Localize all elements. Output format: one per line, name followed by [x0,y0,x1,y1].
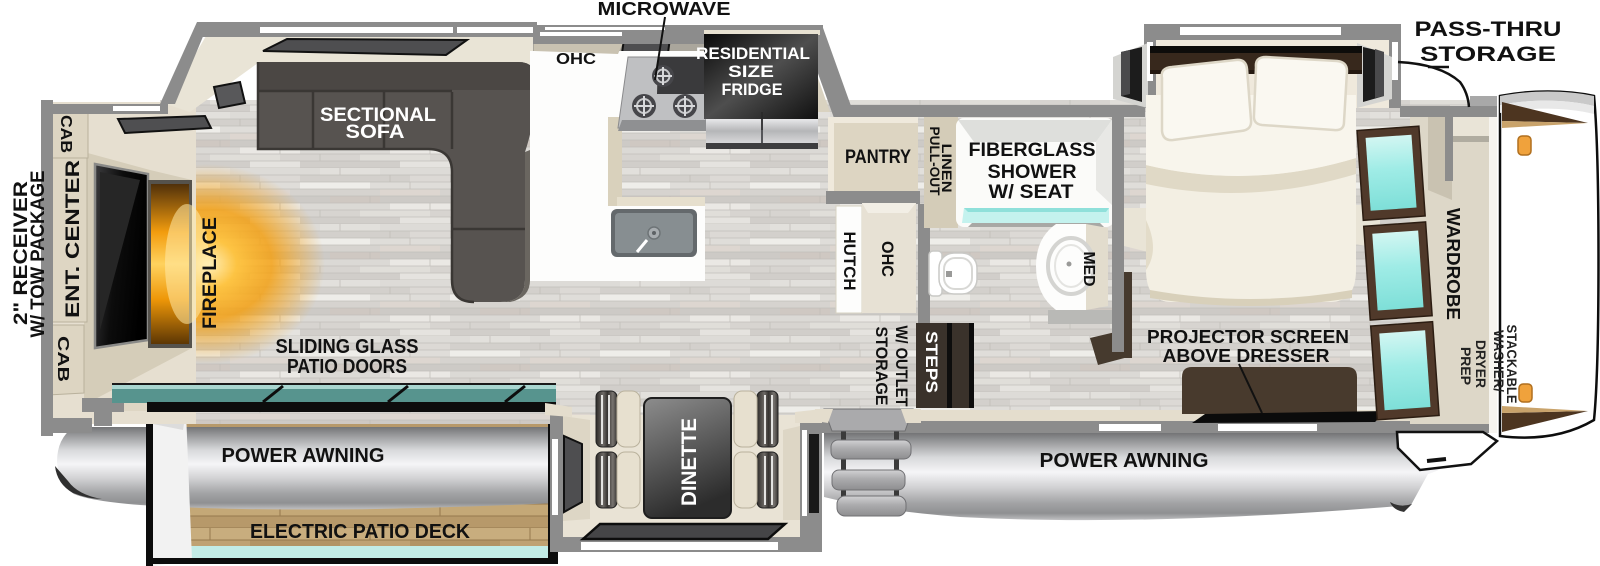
svg-text:PANTRY: PANTRY [845,147,911,168]
svg-text:ABOVE DRESSER: ABOVE DRESSER [1163,345,1330,366]
svg-text:FRIDGE: FRIDGE [722,80,783,99]
svg-text:FIREPLACE: FIREPLACE [200,217,221,329]
svg-text:ENT. CENTER: ENT. CENTER [63,160,84,318]
svg-text:W/ TOW PACKAGE: W/ TOW PACKAGE [28,171,49,338]
svg-text:FIBERGLASS: FIBERGLASS [969,139,1096,161]
svg-text:WASHER/: WASHER/ [1491,330,1507,392]
svg-text:LINEN: LINEN [939,144,955,193]
svg-text:POWER AWNING: POWER AWNING [1040,450,1209,472]
svg-text:OHC: OHC [556,51,596,68]
svg-text:HUTCH: HUTCH [840,232,859,291]
svg-text:STEPS: STEPS [922,331,941,393]
svg-text:STORAGE: STORAGE [1420,43,1556,66]
svg-text:W/ OUTLET: W/ OUTLET [892,326,911,408]
svg-text:ELECTRIC PATIO DECK: ELECTRIC PATIO DECK [250,521,471,543]
svg-text:CAB: CAB [54,336,71,382]
svg-text:DRYER: DRYER [1473,340,1489,388]
svg-text:MICROWAVE: MICROWAVE [598,0,731,19]
svg-text:SHOWER: SHOWER [988,161,1077,183]
svg-text:MED: MED [1080,252,1097,287]
svg-text:CAB: CAB [57,115,74,153]
svg-text:SIZE: SIZE [728,62,774,81]
svg-text:POWER AWNING: POWER AWNING [222,445,385,467]
svg-text:PASS-THRU: PASS-THRU [1415,18,1562,41]
svg-text:PREP: PREP [1458,347,1474,385]
svg-text:SLIDING GLASS: SLIDING GLASS [276,336,419,358]
svg-text:PROJECTOR SCREEN: PROJECTOR SCREEN [1147,326,1349,347]
svg-text:DINETTE: DINETTE [678,418,701,506]
svg-text:WARDROBE: WARDROBE [1443,208,1463,320]
svg-text:PATIO DOORS: PATIO DOORS [287,356,407,378]
svg-text:W/ SEAT: W/ SEAT [989,181,1074,203]
svg-text:RESIDENTIAL: RESIDENTIAL [696,44,810,63]
svg-text:OHC: OHC [878,241,897,277]
svg-text:STORAGE: STORAGE [872,327,891,406]
svg-text:SOFA: SOFA [346,122,405,143]
